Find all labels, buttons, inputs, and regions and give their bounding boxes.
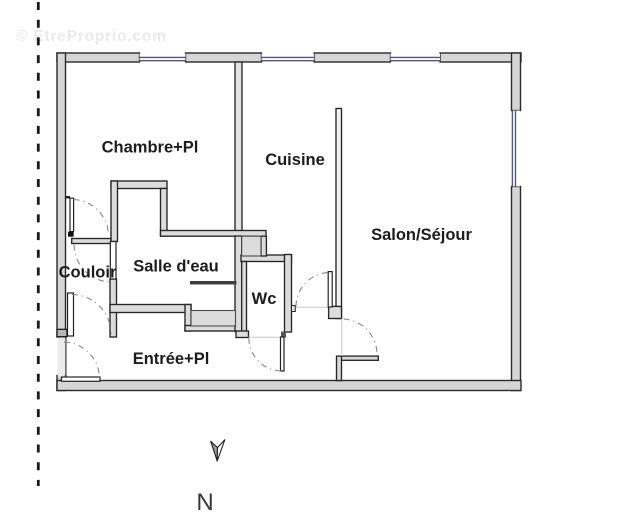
svg-text:Wc: Wc (252, 290, 277, 308)
svg-text:N: N (196, 489, 213, 516)
svg-text:Cuisine: Cuisine (265, 151, 325, 169)
svg-text:Salle d'eau: Salle d'eau (133, 258, 219, 276)
svg-text:Couloir: Couloir (59, 264, 117, 282)
svg-text:Entrée+Pl: Entrée+Pl (133, 350, 210, 368)
svg-text:Chambre+Pl: Chambre+Pl (102, 138, 199, 156)
svg-text:Salon/Séjour: Salon/Séjour (371, 226, 472, 244)
